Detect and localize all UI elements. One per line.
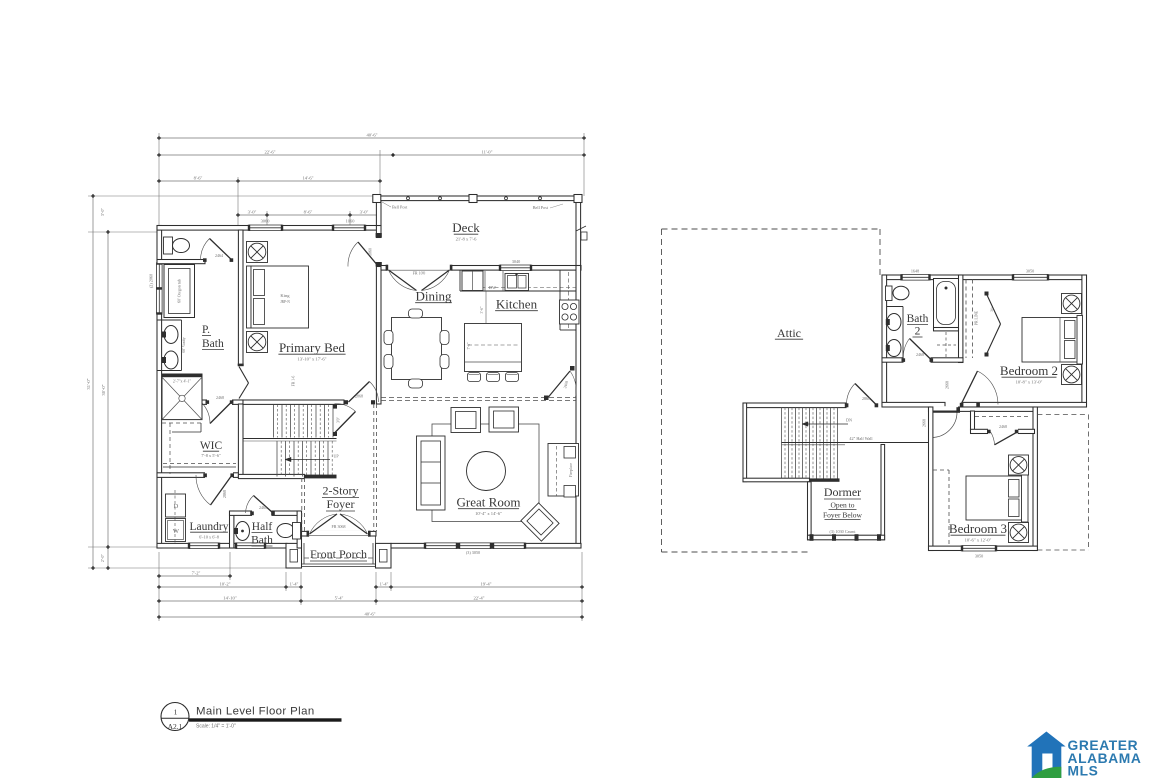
svg-text:(2) 2060: (2) 2060 — [149, 274, 154, 288]
svg-text:10'-2": 10'-2" — [219, 581, 230, 586]
svg-text:3050: 3050 — [1026, 269, 1034, 274]
svg-text:3'-0": 3'-0" — [360, 209, 369, 214]
svg-text:Deck: Deck — [452, 220, 480, 235]
svg-text:22'-4": 22'-4" — [473, 595, 484, 600]
svg-text:FR 1-6: FR 1-6 — [292, 376, 296, 387]
svg-text:JRP-N: JRP-N — [280, 300, 290, 304]
svg-text:10'-6" x 12'-0": 10'-6" x 12'-0" — [965, 538, 992, 543]
svg-text:1: 1 — [174, 708, 178, 717]
svg-text:Bedroom 2: Bedroom 2 — [1000, 363, 1058, 378]
svg-text:Foyer: Foyer — [327, 497, 355, 511]
svg-text:42" Half Wall: 42" Half Wall — [849, 436, 873, 441]
svg-text:2-Story: 2-Story — [323, 484, 359, 498]
svg-text:1060: 1060 — [346, 219, 356, 224]
svg-text:Half: Half — [252, 521, 273, 533]
svg-text:DW: DW — [489, 285, 497, 290]
svg-text:Primary Bed: Primary Bed — [279, 340, 346, 355]
svg-text:Bell Post: Bell Post — [533, 205, 549, 210]
svg-text:D: D — [174, 503, 179, 510]
svg-text:Scale: 1/4" = 1'-0": Scale: 1/4" = 1'-0" — [196, 724, 236, 730]
svg-text:3040: 3040 — [512, 259, 520, 264]
svg-text:10'-8" x 13'-0": 10'-8" x 13'-0" — [1016, 380, 1043, 385]
svg-text:40'-6": 40'-6" — [366, 132, 377, 137]
svg-text:P.: P. — [202, 324, 210, 336]
svg-text:3'0": 3'0" — [337, 417, 341, 423]
svg-text:King: King — [280, 293, 290, 298]
svg-text:(3) 1030 Casmt: (3) 1030 Casmt — [829, 529, 856, 534]
svg-text:2468: 2468 — [259, 505, 267, 510]
svg-text:Foyer Below: Foyer Below — [823, 511, 863, 520]
svg-text:2: 2 — [915, 326, 921, 338]
svg-text:11'-0": 11'-0" — [482, 149, 493, 154]
svg-text:Fireplace: Fireplace — [569, 463, 573, 477]
svg-text:21'-8 x 7'-6: 21'-8 x 7'-6 — [456, 237, 477, 242]
svg-text:7'-2": 7'-2" — [192, 570, 201, 575]
svg-text:Front Porch: Front Porch — [310, 547, 367, 561]
svg-text:3'-0": 3'-0" — [248, 209, 257, 214]
svg-text:Kitchen: Kitchen — [496, 297, 538, 312]
svg-text:1060: 1060 — [368, 248, 373, 256]
svg-text:30'-0": 30'-0" — [101, 384, 106, 395]
svg-text:6'-10 x 6'-8: 6'-10 x 6'-8 — [199, 535, 220, 540]
svg-text:2468: 2468 — [916, 352, 924, 357]
svg-text:13'-10" x 17'-6": 13'-10" x 17'-6" — [297, 357, 326, 362]
svg-text:3060: 3060 — [261, 219, 271, 224]
svg-text:1648: 1648 — [911, 269, 919, 274]
svg-text:2468: 2468 — [216, 395, 224, 400]
svg-text:DN: DN — [846, 418, 852, 423]
svg-text:WIC: WIC — [200, 440, 223, 452]
svg-text:2'-0": 2'-0" — [100, 554, 105, 563]
svg-text:Dormer: Dormer — [824, 485, 861, 499]
svg-text:1'-4": 1'-4" — [380, 581, 389, 586]
svg-text:Bath: Bath — [907, 313, 929, 325]
svg-text:2868: 2868 — [355, 394, 363, 399]
svg-text:3050: 3050 — [975, 554, 983, 559]
svg-text:1'-4": 1'-4" — [290, 581, 299, 586]
svg-text:PR LINE: PR LINE — [975, 310, 979, 325]
svg-text:7'-8 x 5'-6": 7'-8 x 5'-6" — [201, 453, 221, 458]
svg-text:10'-4" x 14'-6": 10'-4" x 14'-6" — [475, 511, 502, 516]
svg-text:60' Vanity: 60' Vanity — [182, 337, 186, 352]
svg-text:Bedroom 3: Bedroom 3 — [949, 521, 1007, 536]
svg-text:UP: UP — [333, 454, 339, 459]
svg-text:14'-6": 14'-6" — [302, 175, 313, 180]
svg-text:Bell Post: Bell Post — [392, 205, 408, 210]
svg-text:8'-6": 8'-6" — [194, 175, 203, 180]
svg-text:2'-7"x 4'-1": 2'-7"x 4'-1" — [173, 379, 192, 384]
svg-text:W: W — [173, 528, 180, 535]
svg-text:5'-4": 5'-4" — [335, 595, 344, 600]
svg-text:31'-0": 31'-0" — [86, 378, 91, 389]
svg-text:Attic: Attic — [777, 326, 801, 340]
svg-text:Laundry: Laundry — [190, 521, 229, 533]
svg-text:Main Level Floor Plan: Main Level Floor Plan — [196, 706, 315, 718]
svg-text:14'-10": 14'-10" — [223, 595, 237, 600]
svg-text:3'-0": 3'-0" — [100, 208, 105, 217]
svg-text:2468: 2468 — [999, 424, 1007, 429]
svg-text:Great Room: Great Room — [457, 495, 521, 510]
svg-text:8'-6": 8'-6" — [304, 209, 313, 214]
svg-text:2868: 2868 — [862, 396, 870, 401]
svg-text:Open to: Open to — [831, 501, 855, 510]
svg-text:2668: 2668 — [922, 419, 927, 427]
svg-text:19'-4": 19'-4" — [480, 581, 491, 586]
svg-text:7'-6": 7'-6" — [467, 342, 471, 349]
svg-text:MLS: MLS — [1068, 764, 1099, 778]
svg-text:(3) 3050: (3) 3050 — [466, 550, 480, 555]
svg-text:2464: 2464 — [215, 253, 223, 258]
svg-text:40'-6": 40'-6" — [364, 611, 375, 616]
svg-text:FR 10'0: FR 10'0 — [413, 271, 426, 276]
svg-text:Bath: Bath — [251, 535, 273, 547]
svg-text:2668: 2668 — [945, 381, 950, 389]
svg-text:60' Oregon tub: 60' Oregon tub — [177, 279, 182, 303]
svg-text:3'-6": 3'-6" — [480, 306, 484, 313]
svg-text:A2.1: A2.1 — [168, 722, 183, 731]
svg-text:2868: 2868 — [222, 490, 227, 498]
svg-text:22'-6": 22'-6" — [264, 149, 275, 154]
svg-text:Bath: Bath — [202, 338, 224, 350]
svg-text:Dining: Dining — [415, 289, 452, 304]
svg-text:FR 3068: FR 3068 — [332, 524, 346, 529]
